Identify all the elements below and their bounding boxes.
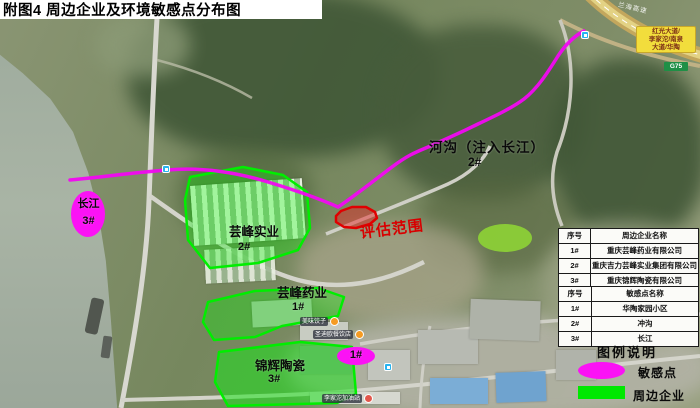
col-header: 序号 — [559, 287, 592, 302]
yangtze-label: 长江 — [72, 199, 105, 210]
yunfeng-shiye-label: 芸峰实业 — [229, 226, 279, 239]
table-row: 2# 冲沟 — [559, 317, 699, 332]
highway-shield: G75 — [664, 62, 688, 71]
road-sign: 红光大道/ 李家沱/南泉 大道/华陶 — [636, 26, 696, 53]
yunfeng-shiye-number: 2# — [238, 242, 250, 253]
table-header-row: 序号 敏感点名称 — [559, 287, 699, 302]
sensitive-points-table: 序号 敏感点名称 1# 华陶家园小区 2# 冲沟 3# 长江 — [558, 286, 699, 347]
poi-gas-station: 李家沱加油站 — [322, 394, 373, 403]
restaurant-icon — [355, 330, 364, 339]
page-title: 附图4 周边企业及环境敏感点分布图 — [0, 0, 241, 20]
legend-sensitive-swatch — [578, 362, 625, 379]
road-sign-line: 红光大道/ — [637, 28, 695, 36]
gas-station-icon — [364, 394, 373, 403]
poi-gas-station-label: 李家沱加油站 — [322, 394, 362, 403]
road-sign-line: 李家沱/南泉 — [637, 36, 695, 44]
yunfeng-yaoye-number: 1# — [292, 302, 304, 313]
col-header: 敏感点名称 — [592, 287, 699, 302]
legend-sensitive-label: 敏感点 — [638, 364, 677, 381]
huatao-number: 1# — [344, 350, 368, 361]
poi-restaurant: 美味饺子 — [300, 317, 339, 326]
road-sign-line: 大道/华陶 — [637, 44, 695, 52]
ditch-number: 2# — [468, 156, 481, 168]
yunfeng-yaoye-label: 芸峰药业 — [277, 287, 327, 300]
poi-restaurant-label: 美味饺子 — [300, 317, 328, 326]
table-row: 1# 重庆芸峰药业有限公司 — [559, 244, 699, 259]
jinhui-taoci-number: 3# — [268, 374, 280, 385]
col-header: 序号 — [559, 229, 591, 244]
legend-enterprise-swatch — [578, 386, 625, 399]
poi-restaurant: 圣迪欧餐饮店 — [313, 330, 364, 339]
table-row: 2# 重庆吉力芸峰实业集团有限公司 — [559, 259, 699, 274]
restaurant-icon — [330, 317, 339, 326]
table-header-row: 序号 周边企业名称 — [559, 229, 699, 244]
bus-stop-icon — [162, 165, 170, 173]
legend-title: 图例说明 — [597, 342, 657, 361]
figure-title-strip: 附图4 周边企业及环境敏感点分布图 — [0, 0, 322, 19]
bus-stop-icon — [384, 363, 392, 371]
poi-restaurant-label: 圣迪欧餐饮店 — [313, 330, 353, 339]
ditch-line-sensitive — [70, 31, 584, 207]
map-figure: 河沟（注入长江） 2# 长江 3# 芸峰实业 2# 芸峰药业 1# 锦辉陶瓷 3… — [0, 0, 700, 408]
table-row: 1# 华陶家园小区 — [559, 302, 699, 317]
bus-stop-icon — [581, 31, 589, 39]
enterprise-table: 序号 周边企业名称 1# 重庆芸峰药业有限公司 2# 重庆吉力芸峰实业集团有限公… — [558, 228, 699, 289]
yangtze-number: 3# — [72, 216, 105, 227]
col-header: 周边企业名称 — [591, 229, 699, 244]
legend-enterprise-label: 周边企业 — [633, 387, 685, 404]
ditch-label: 河沟（注入长江） — [429, 141, 545, 155]
jinhui-taoci-label: 锦辉陶瓷 — [255, 360, 305, 373]
